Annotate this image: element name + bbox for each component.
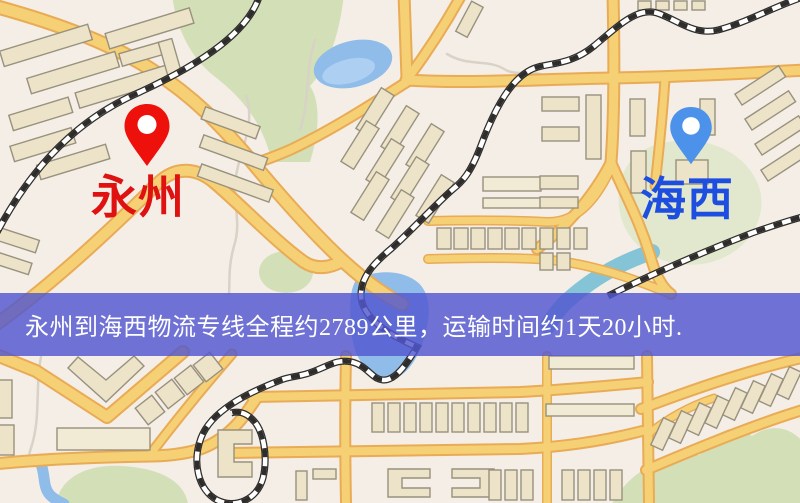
destination-label: 海西 [640, 177, 734, 223]
red-map-pin-icon [121, 102, 173, 170]
route-info-text: 永州到海西物流专线全程约2789公里，运输时间约1天20小时. [25, 307, 683, 342]
blue-map-pin-icon [667, 105, 715, 168]
map-screenshot: 永州 海西 永州到海西物流专线全程约2789公里，运输时间约1天20小时. [0, 0, 800, 503]
destination-pin[interactable] [667, 105, 715, 173]
map-background [0, 0, 800, 503]
route-info-banner: 永州到海西物流专线全程约2789公里，运输时间约1天20小时. [0, 293, 800, 356]
origin-pin[interactable] [121, 102, 173, 175]
origin-label: 永州 [91, 175, 185, 221]
